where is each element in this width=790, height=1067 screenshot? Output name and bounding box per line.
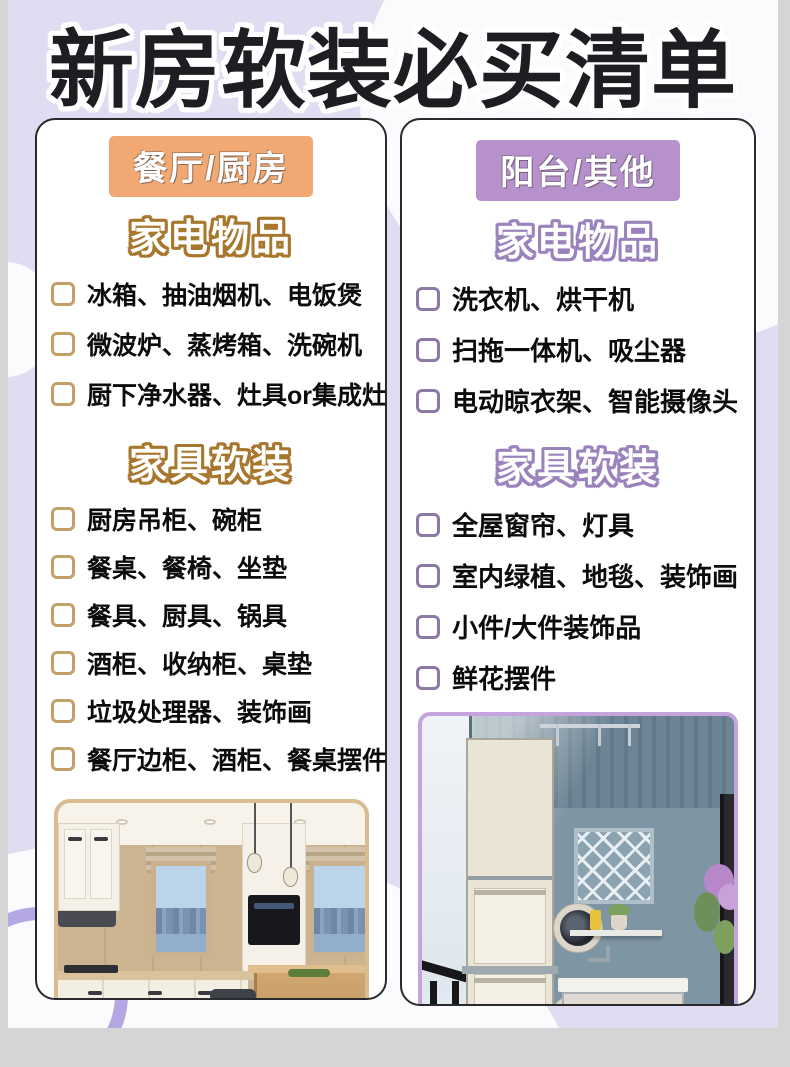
louver-panel — [468, 738, 552, 880]
appliances-checklist: 洗衣机、烘干机 扫拖一体机、吸尘器 电动晾衣架、智能摄像头 — [402, 280, 754, 419]
checkbox-icon — [51, 382, 75, 406]
city-view — [314, 908, 368, 934]
item-label: 餐厅边柜、酒柜、餐桌摆件 — [87, 741, 387, 777]
item-label: 鲜花摆件 — [452, 659, 556, 696]
checklist-item: 电动晾衣架、智能摄像头 — [416, 382, 754, 419]
checkbox-icon — [416, 564, 440, 588]
kitchen-photo — [54, 799, 369, 1000]
page-title: 新房软装必买清单 — [8, 2, 778, 125]
section-title-appliances: 家电物品 — [37, 207, 385, 262]
checklist-item: 酒柜、收纳柜、桌垫 — [51, 645, 385, 681]
cabinet-shelf-bar — [462, 966, 558, 974]
cabinet-handle — [148, 991, 162, 995]
section-title-furniture: 家具软装 — [402, 437, 754, 492]
checklist-item: 餐具、厨具、锅具 — [51, 597, 385, 633]
appliances-checklist: 冰箱、抽油烟机、电饭煲 微波炉、蒸烤箱、洗碗机 厨下净水器、灶具or集成灶 — [37, 276, 385, 412]
dryer-panel — [474, 890, 546, 895]
poster-canvas: 新房软装必买清单 餐厅/厨房 家电物品 冰箱、抽油烟机、电饭煲 微波炉、蒸烤箱、… — [8, 0, 778, 1028]
pendant-light — [247, 853, 262, 873]
item-label: 餐桌、餐椅、坐垫 — [87, 549, 287, 585]
rack-hook — [628, 724, 631, 746]
lattice-panel — [574, 828, 654, 904]
flowers — [718, 884, 738, 910]
checkbox-icon — [416, 513, 440, 537]
item-label: 厨下净水器、灶具or集成灶 — [87, 376, 387, 412]
item-label: 扫拖一体机、吸尘器 — [452, 331, 686, 368]
balcony-other-card: 阳台/其他 家电物品 洗衣机、烘干机 扫拖一体机、吸尘器 电动晾衣架、智能摄像头… — [400, 118, 756, 1006]
city-view — [156, 908, 206, 934]
kitchen-window — [309, 861, 369, 957]
item-label: 室内绿植、地毯、装饰画 — [452, 557, 738, 594]
checkbox-icon — [51, 507, 75, 531]
wall-shelf — [570, 930, 662, 936]
cabinet-handle — [68, 837, 82, 841]
pendant-light — [283, 867, 298, 887]
checklist-item: 洗衣机、烘干机 — [416, 280, 754, 317]
item-label: 酒柜、收纳柜、桌垫 — [87, 645, 312, 681]
faucet — [588, 958, 610, 962]
checkbox-icon — [416, 338, 440, 362]
item-label: 餐具、厨具、锅具 — [87, 597, 287, 633]
pendant-light — [290, 803, 292, 869]
oven-display — [254, 903, 294, 909]
louver-door — [626, 1004, 674, 1006]
range-hood — [58, 911, 116, 927]
checklist-item: 厨房吊柜、碗柜 — [51, 501, 385, 537]
checkbox-icon — [51, 747, 75, 771]
sink-counter — [558, 978, 688, 992]
checklist-item: 室内绿植、地毯、装饰画 — [416, 557, 754, 594]
checkbox-icon — [51, 555, 75, 579]
cabinet-handle — [94, 837, 108, 841]
checkbox-icon — [51, 282, 75, 306]
item-label: 全屋窗帘、灯具 — [452, 506, 634, 543]
balcony-other-badge: 阳台/其他 — [476, 140, 679, 201]
furniture-checklist: 全屋窗帘、灯具 室内绿植、地毯、装饰画 小件/大件装饰品 鲜花摆件 — [402, 506, 754, 696]
checkbox-icon — [416, 615, 440, 639]
pendant-light — [254, 803, 256, 855]
vegetables — [288, 969, 330, 977]
dining-kitchen-card: 餐厅/厨房 家电物品 冰箱、抽油烟机、电饭煲 微波炉、蒸烤箱、洗碗机 厨下净水器… — [35, 118, 387, 1000]
washer-panel — [474, 978, 546, 983]
checkbox-icon — [416, 389, 440, 413]
furniture-checklist: 厨房吊柜、碗柜 餐桌、餐椅、坐垫 餐具、厨具、锅具 酒柜、收纳柜、桌垫 垃圾处理… — [37, 501, 385, 777]
checkbox-icon — [51, 332, 75, 356]
checklist-item: 小件/大件装饰品 — [416, 608, 754, 645]
rack-hook — [598, 724, 601, 746]
checkbox-icon — [51, 699, 75, 723]
item-label: 垃圾处理器、装饰画 — [87, 693, 312, 729]
checklist-item: 冰箱、抽油烟机、电饭煲 — [51, 276, 385, 312]
checklist-item: 餐桌、餐椅、坐垫 — [51, 549, 385, 585]
bar-stool — [210, 989, 256, 1000]
ceiling-light — [204, 819, 216, 825]
item-label: 小件/大件装饰品 — [452, 608, 641, 645]
gas-stove — [64, 965, 118, 973]
dryer — [474, 888, 546, 964]
checklist-item: 鲜花摆件 — [416, 659, 754, 696]
item-label: 厨房吊柜、碗柜 — [87, 501, 262, 537]
rack-hook — [556, 724, 559, 746]
item-label: 洗衣机、烘干机 — [452, 280, 634, 317]
railing-post — [452, 981, 459, 1006]
louver-door — [570, 1004, 618, 1006]
checkbox-icon — [416, 666, 440, 690]
checkbox-icon — [51, 651, 75, 675]
checklist-item: 扫拖一体机、吸尘器 — [416, 331, 754, 368]
dining-kitchen-badge: 餐厅/厨房 — [109, 136, 312, 197]
detergent-bottle — [590, 910, 601, 930]
plant-pot — [611, 915, 627, 930]
item-label: 微波炉、蒸烤箱、洗碗机 — [87, 326, 362, 362]
plant-leaves — [714, 920, 736, 954]
checkbox-icon — [51, 603, 75, 627]
poster-page: { "title": "新房软装必买清单", "colors": { "page… — [0, 0, 790, 1067]
cabinet-handle — [88, 991, 102, 995]
checklist-item: 微波炉、蒸烤箱、洗碗机 — [51, 326, 385, 362]
section-title-furniture: 家具软装 — [37, 434, 385, 489]
item-label: 冰箱、抽油烟机、电饭煲 — [87, 276, 362, 312]
section-title-appliances: 家电物品 — [402, 211, 754, 266]
checkbox-icon — [416, 287, 440, 311]
checklist-item: 垃圾处理器、装饰画 — [51, 693, 385, 729]
item-label: 电动晾衣架、智能摄像头 — [452, 382, 738, 419]
checklist-item: 餐厅边柜、酒柜、餐桌摆件 — [51, 741, 385, 777]
checklist-item: 全屋窗帘、灯具 — [416, 506, 754, 543]
balcony-photo — [418, 712, 738, 1006]
checklist-item: 厨下净水器、灶具or集成灶 — [51, 376, 385, 412]
drying-rack — [540, 724, 640, 728]
kitchen-window — [151, 861, 211, 957]
railing-post — [430, 981, 437, 1006]
